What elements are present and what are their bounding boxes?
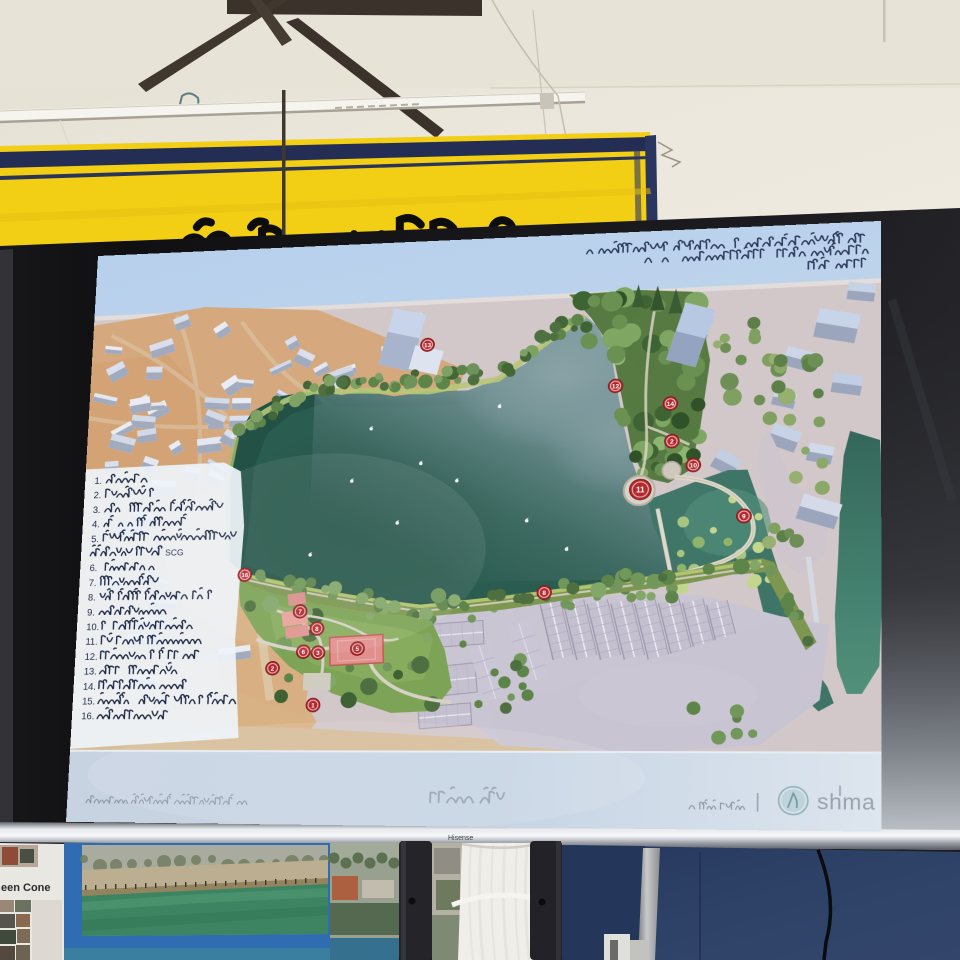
- svg-text:14.: 14.: [83, 681, 97, 692]
- svg-text:10.: 10.: [86, 622, 100, 633]
- svg-text:9: 9: [742, 514, 746, 521]
- svg-text:6.: 6.: [89, 563, 97, 574]
- svg-text:2: 2: [670, 439, 674, 446]
- svg-text:shma: shma: [817, 789, 876, 814]
- svg-text:2: 2: [271, 666, 275, 673]
- svg-text:14: 14: [667, 401, 675, 408]
- svg-text:9.: 9.: [87, 607, 95, 618]
- svg-text:12.: 12.: [84, 651, 98, 662]
- svg-text:2.: 2.: [93, 490, 101, 501]
- svg-text:1.: 1.: [94, 475, 102, 486]
- svg-text:13: 13: [424, 343, 431, 350]
- svg-text:8.: 8.: [88, 592, 96, 603]
- svg-text:Hisense: Hisense: [448, 835, 473, 842]
- svg-text:een Cone: een Cone: [1, 882, 51, 894]
- svg-text:3.: 3.: [93, 504, 101, 515]
- svg-text:10: 10: [690, 463, 698, 470]
- svg-text:7.: 7.: [88, 577, 96, 588]
- svg-text:11: 11: [636, 486, 645, 495]
- svg-text:16.: 16.: [81, 711, 95, 722]
- svg-text:12: 12: [612, 384, 619, 391]
- svg-text:15.: 15.: [82, 696, 96, 707]
- svg-text:5.: 5.: [91, 534, 99, 545]
- svg-text:13.: 13.: [84, 666, 98, 677]
- svg-text:11.: 11.: [85, 636, 98, 647]
- svg-text:4.: 4.: [92, 519, 100, 530]
